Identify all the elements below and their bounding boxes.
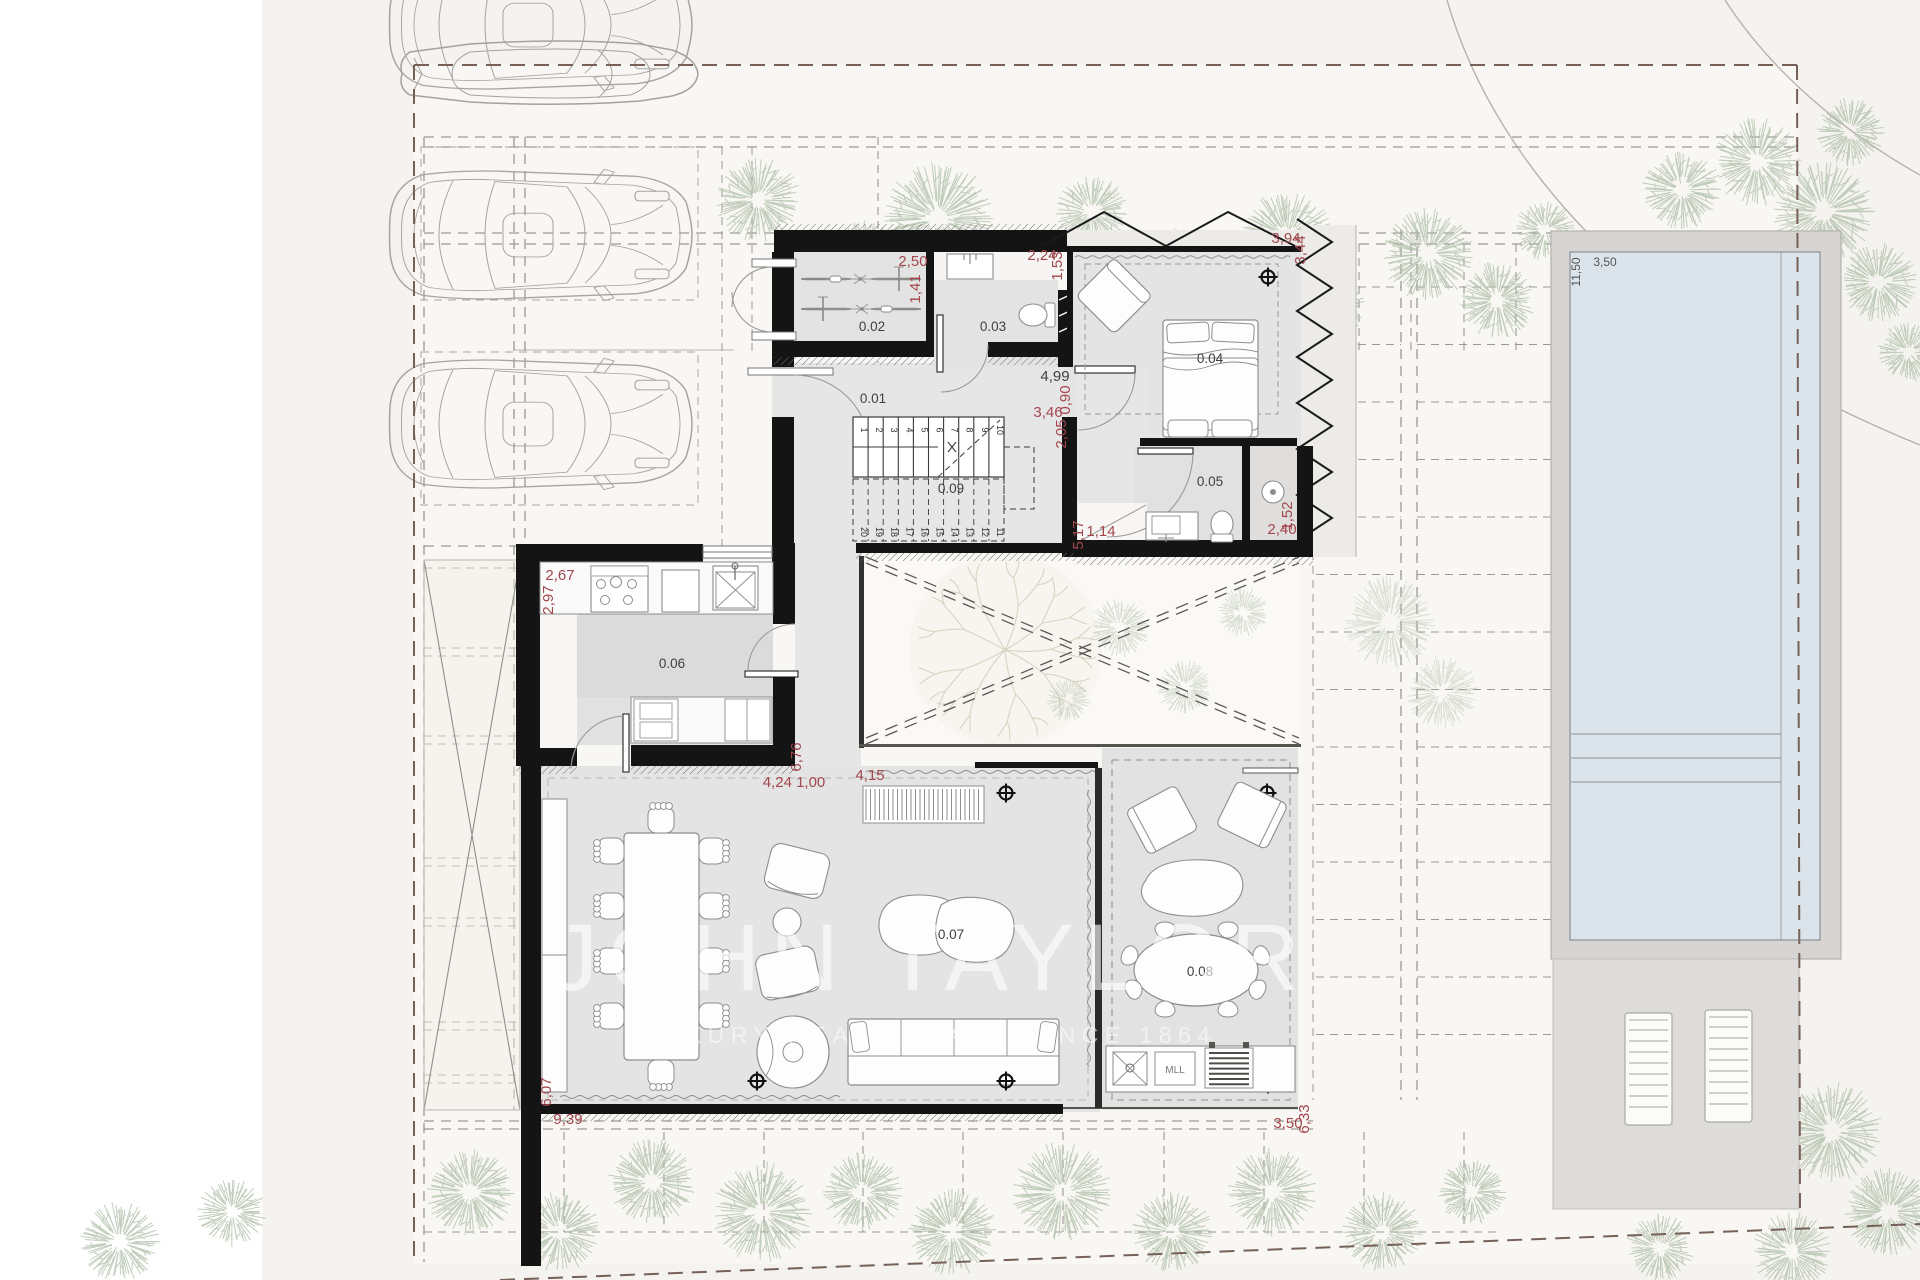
svg-text:1,53: 1,53 [1049,251,1066,280]
svg-text:8: 8 [965,427,975,432]
svg-text:18: 18 [889,527,899,537]
svg-text:1: 1 [859,427,869,432]
svg-text:0.05: 0.05 [1197,474,1223,489]
svg-text:13: 13 [965,527,975,537]
svg-text:20: 20 [859,527,869,537]
svg-text:6,07: 6,07 [538,1077,555,1106]
svg-text:MLL: MLL [1165,1065,1185,1076]
svg-text:14: 14 [950,527,960,537]
svg-text:0.02: 0.02 [859,319,885,334]
svg-text:5: 5 [919,427,929,432]
svg-text:10: 10 [995,425,1005,435]
svg-text:0.04: 0.04 [1197,351,1224,366]
svg-text:JOHN TAYLOR: JOHN TAYLOR [550,905,1309,1011]
svg-text:4: 4 [904,427,914,432]
svg-text:11,50: 11,50 [1569,257,1583,286]
svg-text:15: 15 [935,527,945,537]
svg-text:4,99: 4,99 [1040,368,1069,385]
svg-text:17: 17 [904,527,914,537]
svg-text:12: 12 [980,527,990,537]
svg-text:5,17: 5,17 [1070,520,1087,549]
svg-text:16: 16 [919,527,929,537]
svg-text:1,52: 1,52 [1279,501,1296,530]
svg-text:11: 11 [995,527,1005,536]
svg-text:3,44: 3,44 [1292,235,1309,264]
svg-text:7: 7 [950,427,960,432]
svg-text:4,15: 4,15 [855,767,884,784]
svg-text:1,41: 1,41 [907,274,924,303]
svg-text:9: 9 [980,427,990,432]
svg-text:3,46: 3,46 [1033,404,1062,421]
svg-text:2: 2 [874,427,884,432]
svg-text:2,97: 2,97 [540,585,557,614]
svg-text:0.09: 0.09 [938,481,964,496]
svg-text:9,39: 9,39 [553,1111,582,1128]
svg-text:3: 3 [889,427,899,432]
svg-text:1,14: 1,14 [1086,523,1115,540]
svg-text:6: 6 [935,427,945,432]
svg-text:2,05: 2,05 [1053,419,1070,448]
svg-text:6,76: 6,76 [788,742,805,771]
svg-text:19: 19 [874,527,884,537]
svg-text:0.06: 0.06 [659,656,685,671]
svg-text:0.01: 0.01 [860,391,886,406]
svg-text:4,24 1,00: 4,24 1,00 [763,774,826,791]
svg-text:0.03: 0.03 [980,319,1006,334]
svg-text:6,33: 6,33 [1296,1104,1313,1133]
svg-text:3,50: 3,50 [1593,255,1617,269]
svg-text:2,50: 2,50 [898,253,927,270]
svg-text:2,67: 2,67 [545,567,574,584]
svg-text:LUXURY REAL ESTATE SINCE 1864: LUXURY REAL ESTATE SINCE 1864 [643,1022,1216,1048]
